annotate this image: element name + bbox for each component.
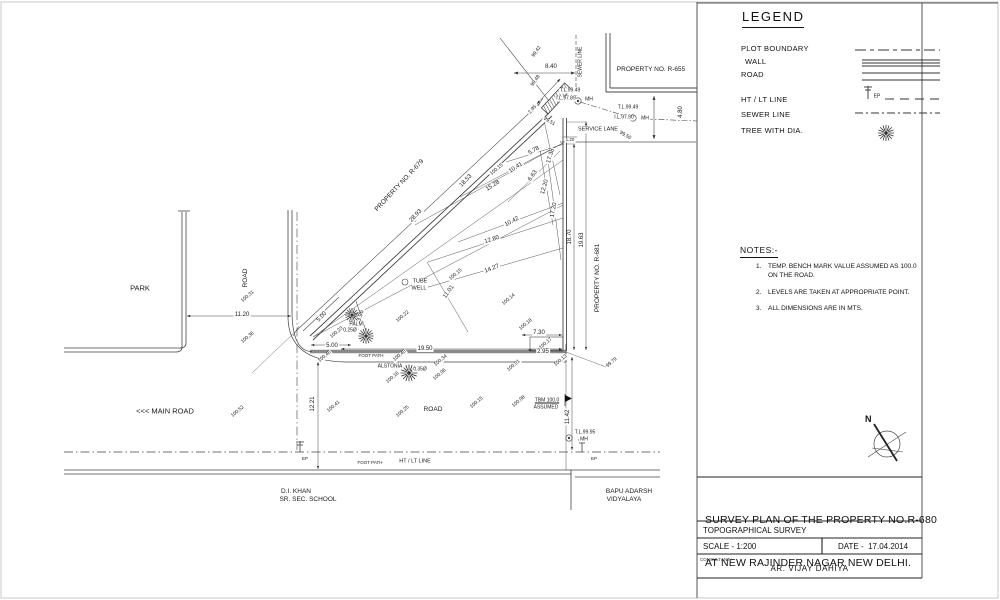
note-number: 2. [756,289,761,296]
drawing-label: 19.50 [416,346,433,352]
drawing-label: I.L.97.90 [613,116,634,121]
legend-symbols [855,50,940,141]
drawing-label: 5.00 [325,343,339,349]
park-wall [64,211,190,352]
drawing-label: ASSUMED [533,406,560,411]
note-text: TEMP. BENCH MARK VALUE ASSUMED AS 100.0 [768,263,917,270]
drawing-label: 7.30 [532,330,546,336]
legend-item-plot-boundary: PLOT BOUNDARY [741,45,809,54]
wall-symbol [862,60,940,66]
note-text: ALL DIMENSIONS ARE IN MTS. [768,305,863,312]
drawing-label: VIDYALAYA [606,497,643,504]
service-lane-label: SERVICE LANE [577,127,619,133]
north-label: N [865,414,872,424]
tube-well-label: TUBE [412,279,429,285]
legend-item-tree: TREE WITH DIA. [741,127,803,136]
north-compass-icon [868,424,906,461]
drawing-label: T.L.99.49 [617,106,640,111]
property-r655-label: PROPERTY NO. R-655 [616,67,686,74]
note-text: ON THE ROAD. [768,272,815,279]
drawing-label: 19.63 [579,231,585,248]
drawing-label: 12.21 [310,395,316,412]
drawing-title: SURVEY PLAN OF THE PROPERTY NO.R-680 AT … [697,479,930,598]
drawing-label: ALSTONIA [377,365,404,370]
drawing-label: 1.20 [565,138,576,143]
notes-title: NOTES:- [740,246,778,258]
consultant-label: CONSULTANT :- [700,557,734,562]
school-label: D.I. KHAN [280,489,312,496]
drawing-label: 4.80 [678,105,684,119]
main-road-label: <<< MAIN ROAD [135,407,195,415]
drawing-label: SR. SEC. SCHOOL [278,497,337,504]
drawing-label: 11.20 [234,312,251,318]
drawing-label: MH [579,438,589,443]
drawing-label: EP [873,95,882,100]
survey-type: TOPOGRAPHICAL SURVEY [703,526,806,535]
note-number: 3. [756,305,761,312]
ht-lt-line-label: HT / LT LINE [398,459,431,465]
scale-value: SCALE - 1:200 [703,542,756,551]
tube-well-icon [402,279,408,285]
legend-item-road: ROAD [741,71,764,80]
drawing-label: T.L.99.49 [559,89,582,94]
foot-path-label: FOOT PATH [357,354,384,359]
property-r681-label: PROPERTY NO. R-681 [595,243,602,313]
road-symbol [862,73,940,80]
drawing-label: 11.42 [565,409,571,426]
drawing-label: MH [640,117,650,122]
legend-item-ht-lt-line: HT / LT LINE [741,96,788,105]
tbm-label: TBM 100.0 [534,399,560,404]
drawing-label: 0.25Ø [342,329,358,334]
drawing-label: I.L.97.89 [555,97,576,102]
sewer-line-label: SEWER LINE [579,46,584,79]
drawing-label: 0.35Ø [412,368,428,373]
note-number: 1. [756,263,761,270]
legend-title: LEGEND [742,10,804,28]
legend-item-wall: WALL [745,58,766,67]
date-value: DATE - 17.04.2014 [838,542,908,551]
electric-pole-icon [296,439,586,452]
drawing-label: 2.95 [536,349,550,355]
palm-tree-icon [358,328,373,343]
tree-symbol [878,125,894,141]
drawing-label: MH [584,98,594,103]
survey-sheet: 99.428.4099.48SEWER LINEPROPERTY NO. R-6… [0,0,1000,600]
park-label: PARK [129,284,151,292]
drawing-label: EP [301,457,309,462]
drawing-label: ROAD [243,268,250,289]
drawing-label: EP [590,457,598,462]
road-label: ROAD [423,407,444,414]
drawing-label: WELL [411,286,428,292]
consultant-name: AR. VIJAY DAHIYA [697,564,922,573]
vidyalaya-label: BAPU ADARSH [605,489,653,496]
note-text: LEVELS ARE TAKEN AT APPROPRIATE POINT. [768,289,909,296]
legend-item-sewer-line: SEWER LINE [741,111,790,120]
drawing-label: 8.40 [544,64,558,70]
drawing-label: 18.70 [567,228,573,245]
drawing-label: FOOT PATH [356,461,383,466]
drawing-label: T.L.99.95 [574,431,597,436]
